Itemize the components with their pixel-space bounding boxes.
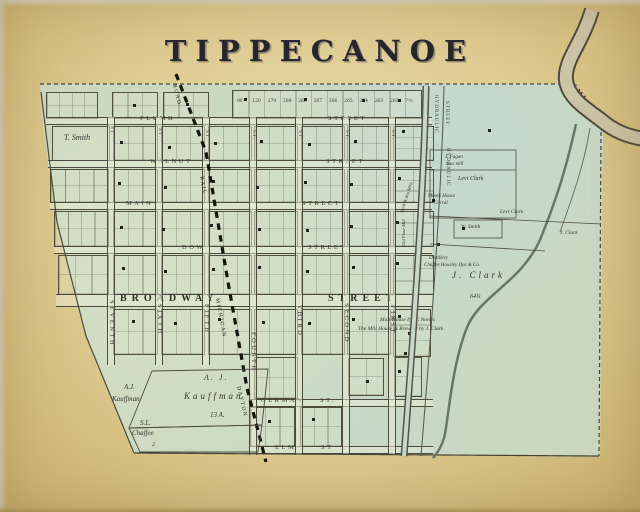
owner-label: Old Flour Mill [402,219,407,246]
building-mark [256,186,259,189]
owner-label: J. Clark [452,271,505,280]
street-suffix-label: STREET [302,201,341,208]
building-mark [258,228,261,231]
owner-label: T. Smith [64,134,90,142]
town-block [161,126,205,161]
town-block [208,169,252,203]
building-mark [398,177,401,180]
building-mark [398,315,401,318]
street-st-label: ST. [109,126,114,136]
building-mark [306,229,309,232]
town-block [161,255,205,295]
town-block [161,309,205,355]
building-mark [162,228,165,231]
street-name-label: HYDRAULIC [445,148,450,186]
building-mark [164,270,167,273]
owner-label: The Mill House & Brewery by J. Clark [358,327,443,333]
town-block [254,169,298,203]
building-mark [396,262,399,265]
street-plumb [46,117,432,125]
building-mark [122,267,125,270]
building-mark [164,186,167,189]
street-name-label: STREET [444,101,449,125]
street-suffix-label: ST. [320,398,336,405]
building-mark [262,321,265,324]
lot-number: 263 [375,100,384,105]
town-block [113,309,158,355]
town-block [254,126,298,161]
street-suffix-label: ST [321,445,334,452]
street-name-label: SEVENTH [108,300,115,347]
building-mark [133,104,136,107]
building-mark [308,143,311,146]
building-mark [212,180,215,183]
owner-label: J. Clark [560,231,578,237]
street-second [342,117,350,455]
building-mark [260,140,263,143]
building-mark [462,227,465,230]
town-block [46,92,98,119]
town-block [301,169,345,203]
owner-label: Kauffman [112,396,140,403]
town-block [393,126,434,161]
town-block [393,211,434,247]
street-walnut [48,160,432,168]
building-mark [132,320,135,323]
building-mark [398,370,401,373]
building-mark [404,352,407,355]
town-block [254,309,298,355]
map-annotations: PLUMBSTREETWALNUTSTREETMAINSTREETDOWSTRE… [0,0,640,512]
town-block [347,255,391,295]
owner-label: Chaffee Housley Dye & Co. [424,263,480,268]
building-mark [174,322,177,325]
town-block [393,255,434,295]
street-third [295,117,303,455]
town-block [54,211,109,247]
building-mark [350,183,353,186]
street-name-label: SIXTH [156,304,163,336]
building-mark [488,129,491,132]
building-mark [306,270,309,273]
building-mark [118,182,121,185]
street-first [388,117,396,455]
street-name-label: FIFTH [203,304,210,335]
owner-label: Saw mill [446,162,463,167]
owner-label: 2 [152,442,155,448]
building-mark [120,141,123,144]
town-block [254,255,298,295]
building-mark [352,266,355,269]
town-block [113,169,158,203]
street-name-label: HYDRAULIC [433,95,438,133]
lot-number: 270 [268,100,277,105]
owner-label: A. J. [204,374,228,382]
lot-number: 265 [344,100,353,105]
owner-label: S.L. [140,420,151,427]
town-block [52,126,110,161]
owner-label: Malt House by W. Norris [380,318,435,324]
building-mark [352,318,355,321]
lot-number: 98 [237,100,243,105]
owner-label: 64¾ [470,294,481,300]
building-mark [437,243,440,246]
building-mark [212,268,215,271]
owner-label: Corral [434,201,448,206]
town-block [50,169,109,203]
building-mark [214,142,217,145]
street-st-label: ST. [204,130,209,140]
street-st-label: ST. [251,130,256,140]
map-sheet: TIPPECANOE PLUMBSTREETWALNUTSTREETMAINST… [0,0,640,512]
street-fourth [249,117,257,455]
building-mark [350,225,353,228]
owner-label: Distillery [429,256,448,261]
lot-number: 269 [283,100,292,105]
town-block [113,255,158,295]
building-mark [168,146,171,149]
town-block [300,407,342,447]
town-block [347,126,391,161]
town-block [208,309,252,355]
owner-label: A.J. [124,384,135,391]
town-block [347,211,391,247]
building-mark [398,99,401,102]
building-mark [308,322,311,325]
building-mark [402,130,405,133]
building-mark [366,380,369,383]
building-mark [362,99,365,102]
town-block [161,211,205,247]
building-mark [354,140,357,143]
town-block [347,169,391,203]
river-label: RIVER [595,118,628,135]
building-mark [258,266,261,269]
lot-number: 120 [252,100,261,105]
lot-number: 7½ [405,100,412,105]
building-mark [186,103,189,106]
street-st-label: ST. [344,130,349,140]
town-block [58,255,109,295]
owner-label: Chaffee [132,430,154,437]
street-name-label: MAIN [126,201,153,208]
town-block [348,358,384,396]
lot-number: 266 [329,100,338,105]
building-mark [304,181,307,184]
street-name-label: THIRD [296,305,303,337]
lot-number: 267 [314,100,323,105]
building-mark [304,98,307,101]
street-name-label: ELM [275,445,296,452]
street-name-label: SECOND [343,303,350,344]
owner-label: J. Fagan [445,155,463,160]
street-st-label: ST. [390,130,395,140]
building-mark [408,332,411,335]
building-mark [268,420,271,423]
owner-label: Levi Clark [458,176,484,182]
town-block [301,309,345,355]
town-block [232,90,422,119]
building-mark [396,221,399,224]
town-block [254,357,298,399]
town-block [394,357,422,397]
railroad-label: DAYTON [235,386,247,418]
street-name-label: FOURTH [250,332,257,373]
town-block [113,211,158,247]
street-st-label: ST. [157,128,162,138]
street-st-label: ST. [297,130,302,140]
building-mark [218,318,221,321]
building-mark [210,224,213,227]
town-block [208,255,252,295]
building-mark [120,226,123,229]
building-mark [312,418,315,421]
building-mark [432,199,435,202]
building-mark [244,98,247,101]
river-label: MIAMI [561,72,587,103]
town-block [301,255,345,295]
owner-label: 13 A. [210,412,225,419]
owner-label: Kauffman [184,392,244,401]
owner-label: Levi Clark [500,210,523,216]
town-block [208,211,252,247]
